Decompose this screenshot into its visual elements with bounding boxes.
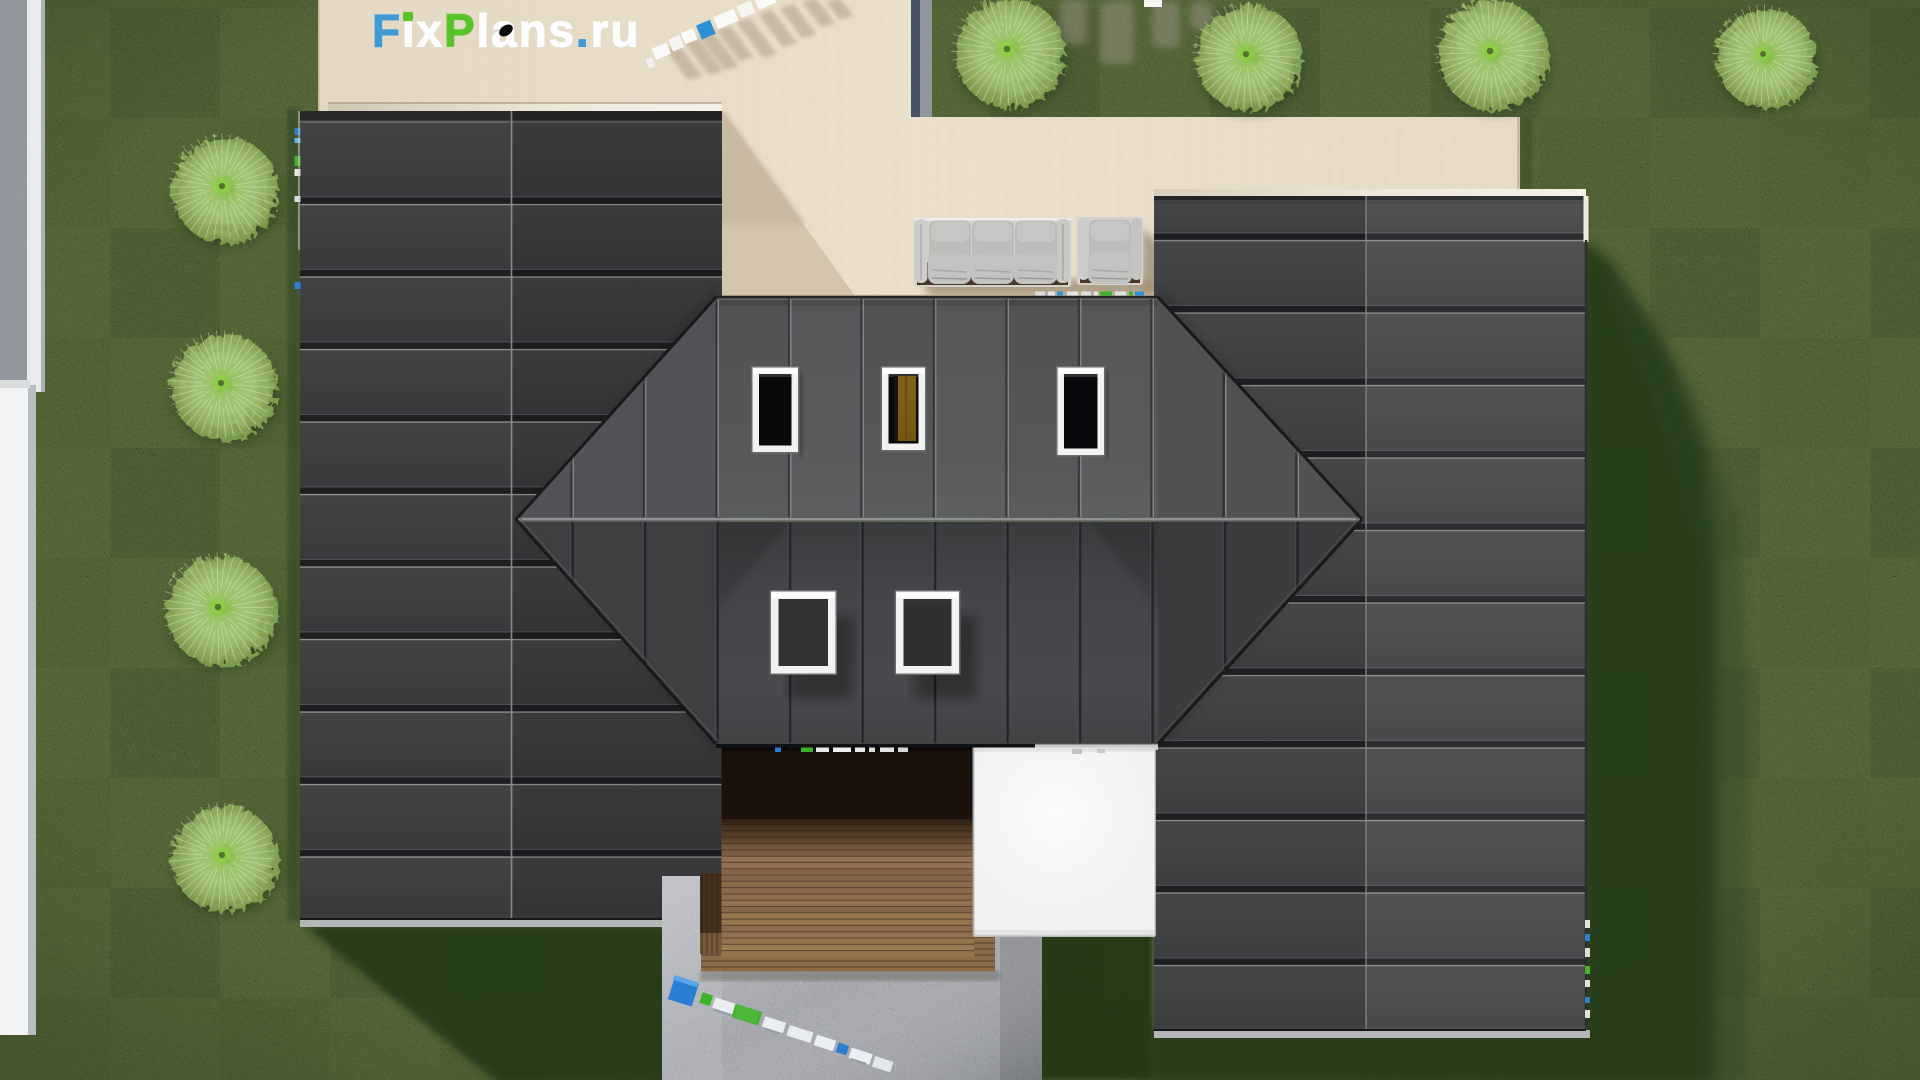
svg-text:P: P bbox=[444, 5, 477, 57]
svg-text:ru: ru bbox=[591, 5, 641, 57]
svg-text:.: . bbox=[576, 5, 591, 57]
svg-text:F: F bbox=[372, 5, 402, 57]
svg-text:lans: lans bbox=[477, 5, 576, 57]
